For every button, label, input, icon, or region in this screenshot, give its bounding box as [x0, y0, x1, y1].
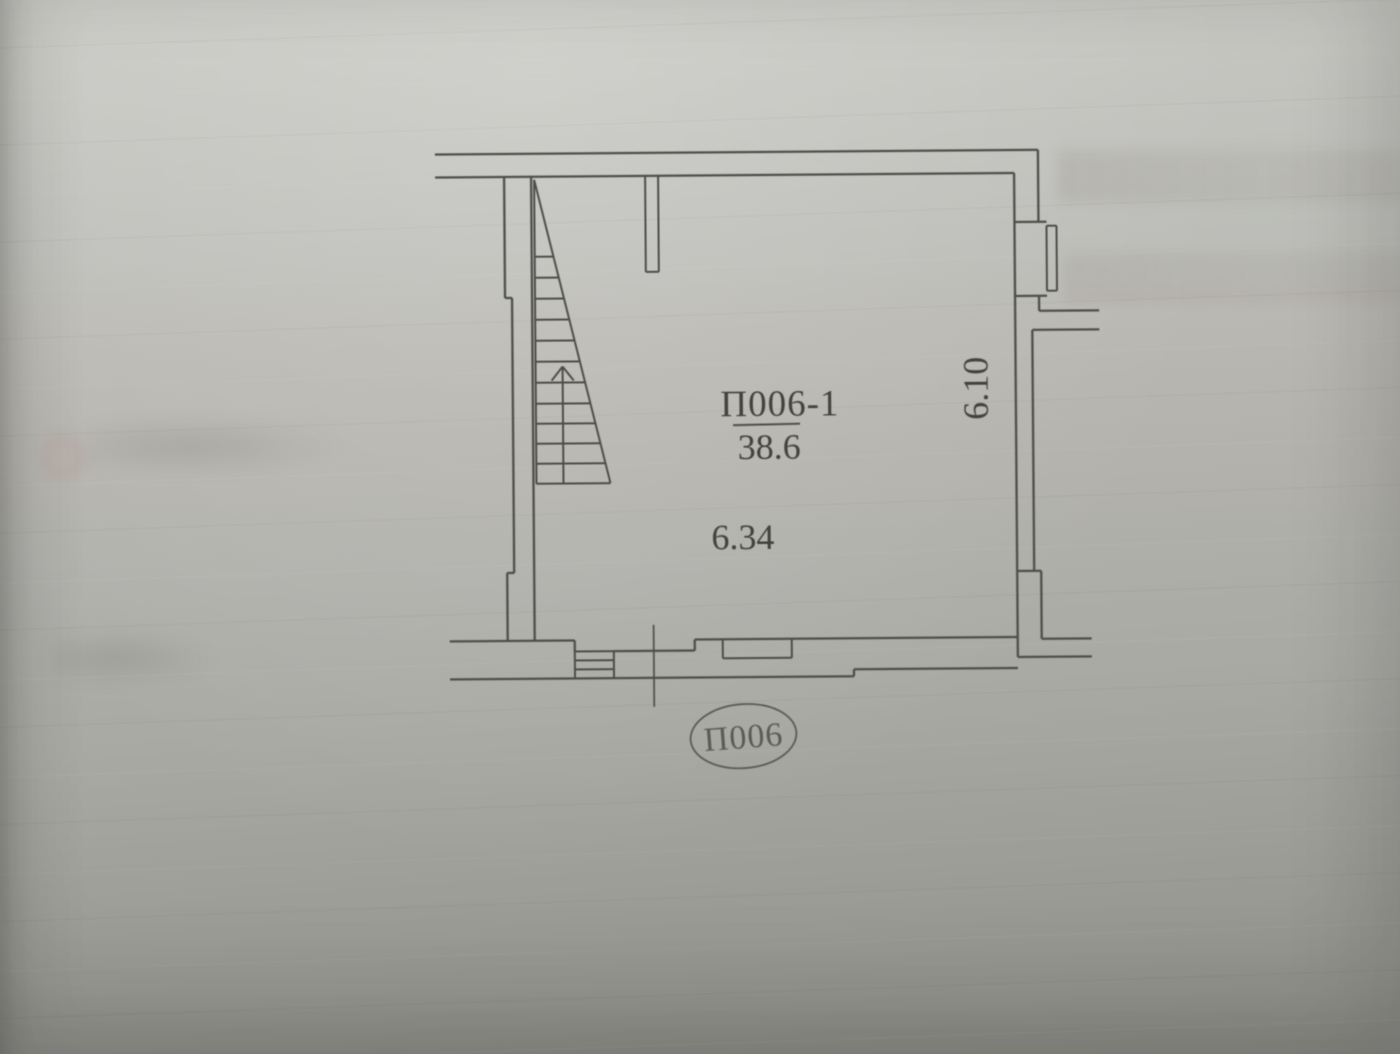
right-wall-upper-opening [1032, 310, 1099, 330]
axis-line [654, 625, 655, 707]
threshold-steps [575, 651, 614, 678]
room-label-block: П006-1 38.6 [720, 383, 840, 467]
floor-plan-svg: П006-1 38.6 6.34 6.10 П006 [0, 0, 1400, 1054]
left-wall-upper-column [504, 177, 505, 298]
right-wall [1014, 149, 1102, 657]
scanned-paper-sheet: П006-1 38.6 6.34 6.10 П006 [0, 0, 1400, 1054]
stair-walk-line [563, 383, 564, 484]
staircase [534, 179, 610, 484]
room-stamp-label: П006 [703, 716, 785, 759]
stair-direction-arrow [552, 366, 574, 383]
partition-stub [645, 176, 659, 272]
room-label: П006-1 [720, 383, 839, 425]
top-wall [435, 150, 1038, 178]
wall-niche [1014, 222, 1057, 296]
stair-bottom-edge [536, 483, 610, 484]
right-wall-inner-line [1014, 173, 1018, 657]
right-wall-lower-opening [1018, 638, 1092, 657]
right-wall-outer-lower [1041, 571, 1042, 639]
room-area: 38.6 [738, 427, 801, 467]
stair-left-edge [534, 180, 536, 484]
top-wall-outer-line [435, 150, 1038, 155]
bottom-wall [450, 637, 1018, 679]
room-stamp: П006 [688, 700, 799, 772]
left-wall [504, 177, 535, 641]
floor-plan-drawing: П006-1 38.6 6.34 6.10 П006 [435, 149, 1103, 774]
stair-diagonal [534, 179, 610, 484]
door-recess [723, 639, 792, 659]
dimension-vertical: 6.10 [956, 357, 996, 420]
top-wall-inner-line [435, 173, 1014, 178]
right-wall-outer-mid [1032, 330, 1034, 571]
right-wall-outer-upper [1038, 150, 1039, 222]
stair-treads [535, 256, 606, 464]
left-wall-lower-column [507, 573, 508, 641]
dimension-horizontal: 6.34 [711, 517, 774, 557]
